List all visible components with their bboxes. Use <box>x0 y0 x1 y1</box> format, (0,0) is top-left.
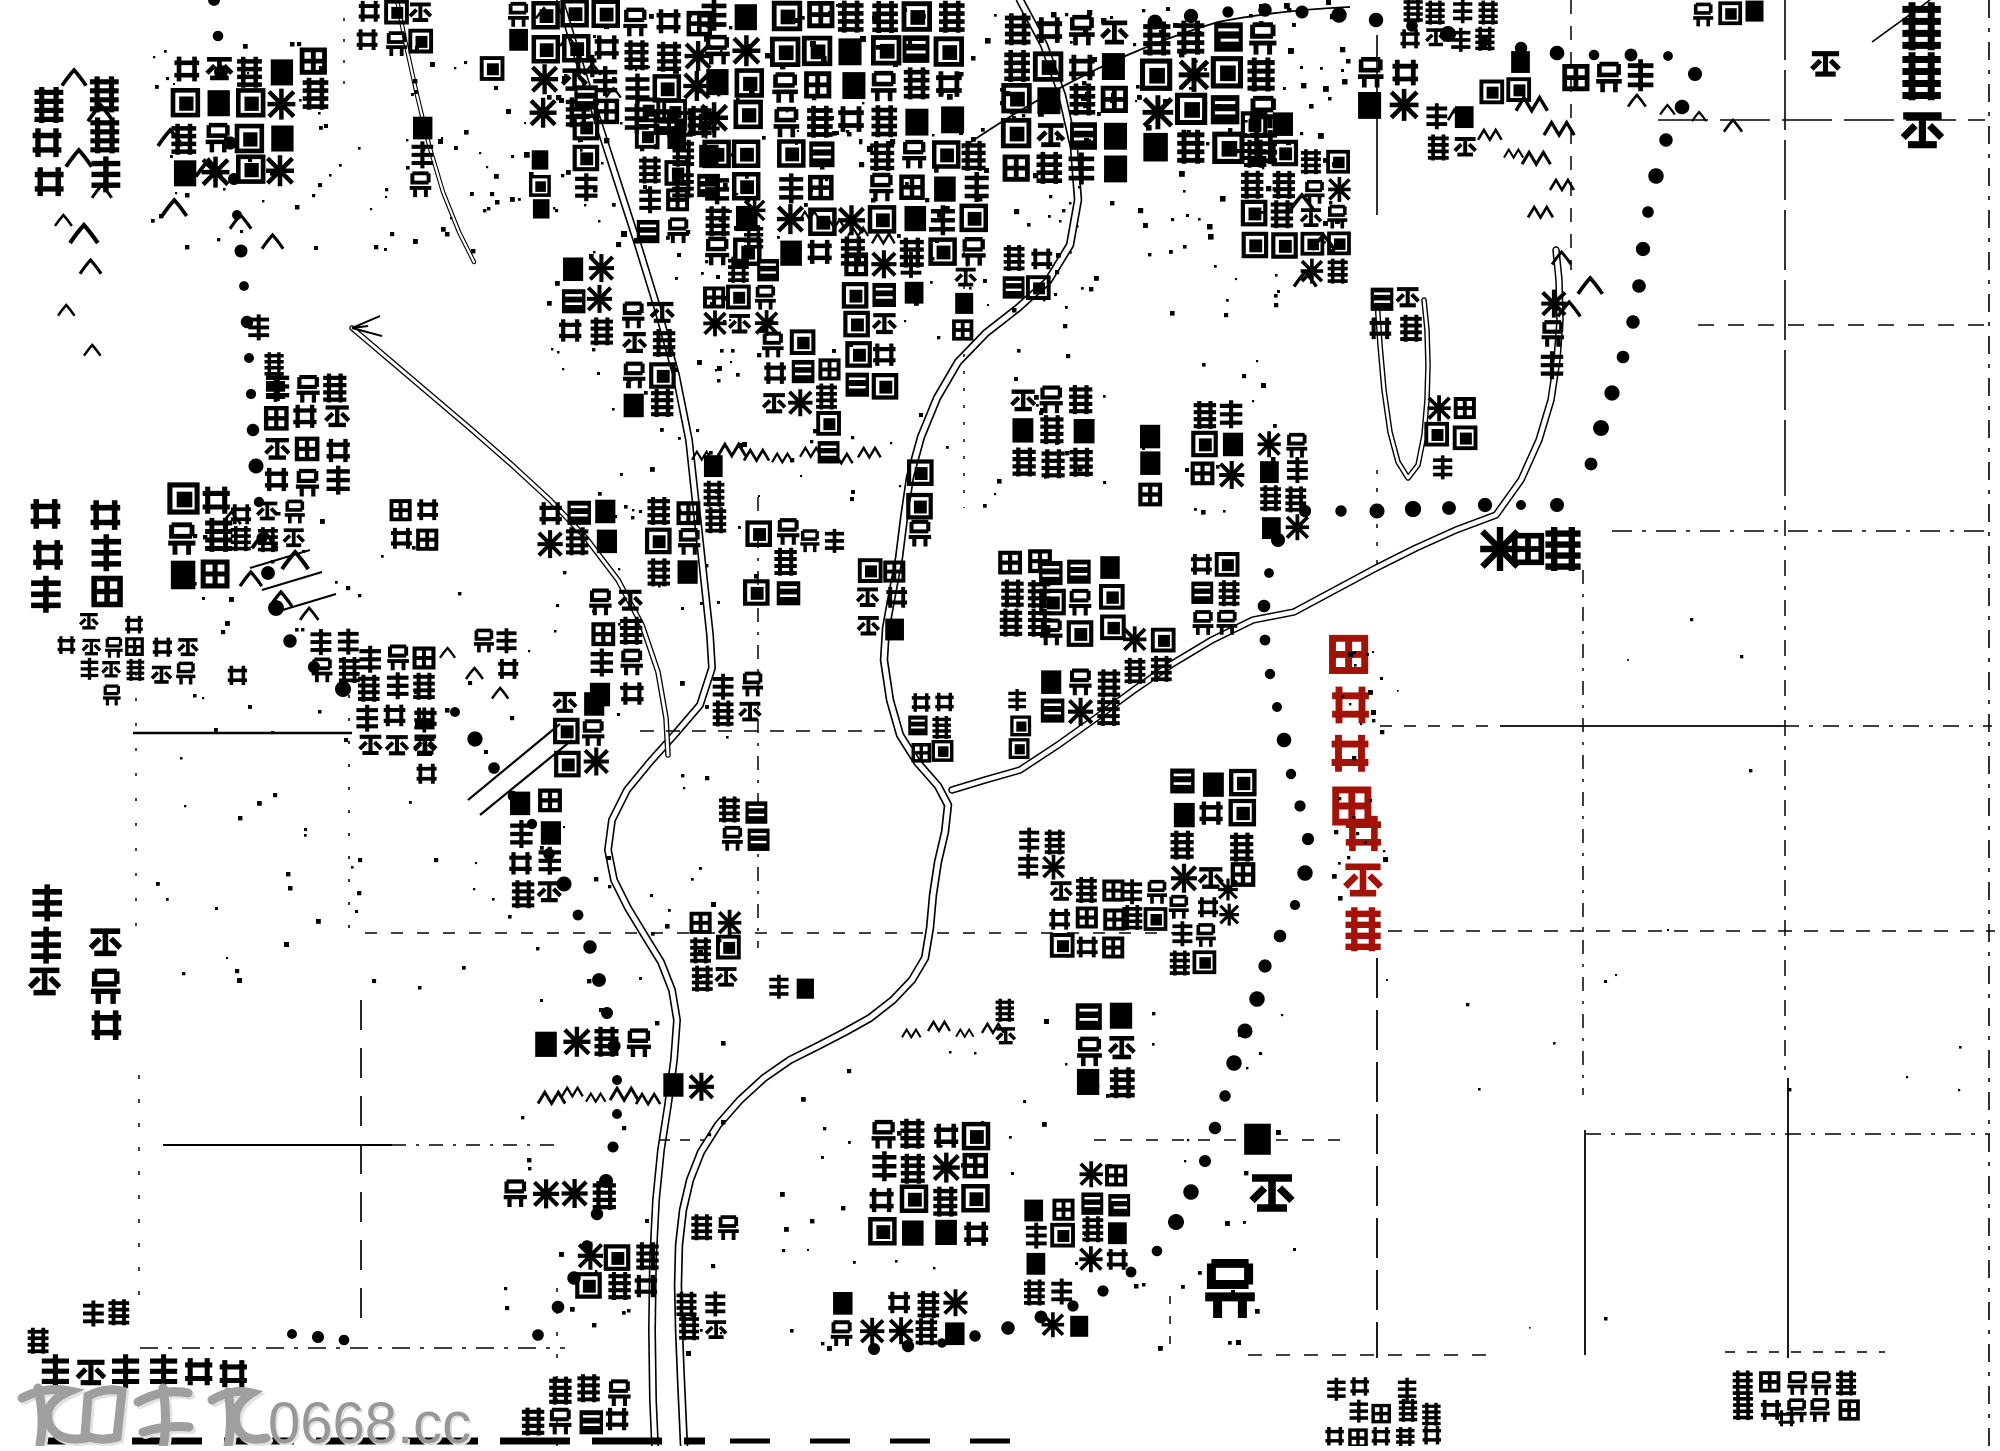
svg-text:0668.cc: 0668.cc <box>268 1391 471 1446</box>
